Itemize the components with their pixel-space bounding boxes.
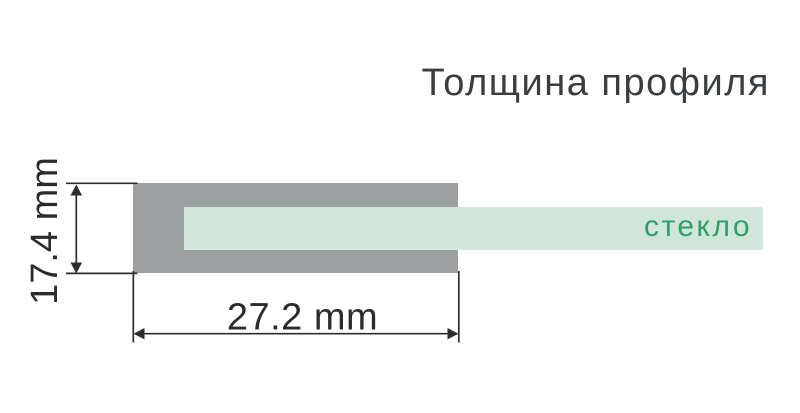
svg-text:стекло: стекло <box>644 210 752 243</box>
svg-text:27.2 mm: 27.2 mm <box>227 297 378 339</box>
svg-text:17.4 mm: 17.4 mm <box>24 157 66 305</box>
svg-text:Толщина профиля: Толщина профиля <box>422 62 770 104</box>
